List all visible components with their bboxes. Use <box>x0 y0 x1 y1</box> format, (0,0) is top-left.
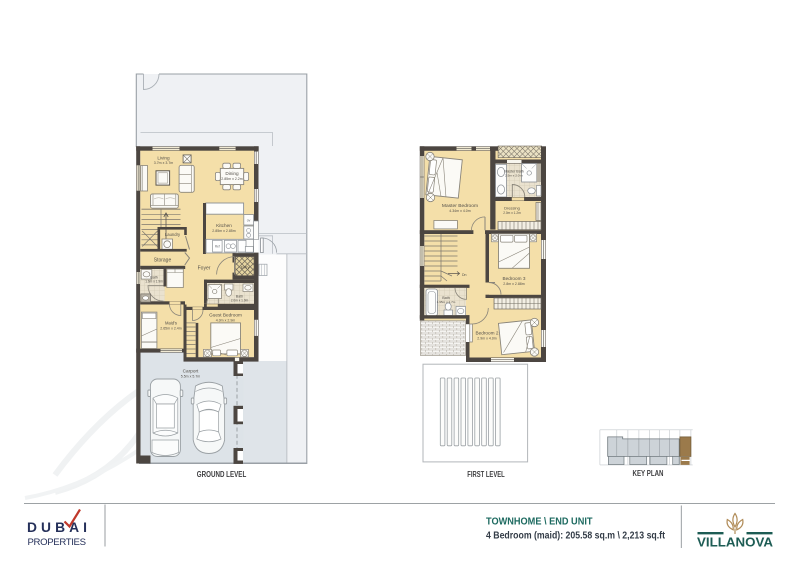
svg-text:1.95m x 1.7m: 1.95m x 1.7m <box>437 300 456 304</box>
svg-text:Dressing: Dressing <box>504 206 520 211</box>
svg-text:5.5m x 5.7m: 5.5m x 5.7m <box>181 374 201 378</box>
svg-text:2.85m x 2.85m: 2.85m x 2.85m <box>212 229 236 233</box>
svg-text:2.5m x 2.0 m: 2.5m x 2.0 m <box>505 174 523 178</box>
svg-text:Kitchen: Kitchen <box>216 223 232 228</box>
svg-text:GROUND LEVEL: GROUND LEVEL <box>197 470 247 479</box>
svg-text:Guest Bedroom: Guest Bedroom <box>209 313 242 318</box>
svg-text:2.9m x 4.0m: 2.9m x 4.0m <box>477 336 497 340</box>
svg-text:VILLANOVA: VILLANOVA <box>697 536 773 550</box>
svg-text:Maid's: Maid's <box>165 321 177 326</box>
svg-text:PROPERTIES: PROPERTIES <box>28 537 87 548</box>
svg-text:DUBAI: DUBAI <box>27 520 87 535</box>
svg-text:Ref: Ref <box>215 245 220 249</box>
svg-text:2.0m x 1.9m: 2.0m x 1.9m <box>231 299 249 303</box>
svg-text:Dining: Dining <box>225 171 239 176</box>
svg-text:2.65m x 2.4m: 2.65m x 2.4m <box>160 326 182 330</box>
svg-text:1.6m x 1.9m: 1.6m x 1.9m <box>145 280 163 284</box>
svg-text:4 Bedroom (maid): 205.58 sq.m: 4 Bedroom (maid): 205.58 sq.m \ 2,213 sq… <box>486 530 665 542</box>
svg-text:Carport: Carport <box>183 369 199 374</box>
svg-text:3.7m x 3.7m: 3.7m x 3.7m <box>154 161 174 165</box>
svg-text:Bedroom 2: Bedroom 2 <box>476 331 499 336</box>
svg-text:Laundry: Laundry <box>165 232 181 237</box>
svg-text:KEY PLAN: KEY PLAN <box>633 469 664 478</box>
svg-text:2.0m x 1.2m: 2.0m x 1.2m <box>503 211 521 215</box>
svg-text:Foyer: Foyer <box>198 266 211 272</box>
svg-text:Living: Living <box>157 156 170 161</box>
svg-text:FIRST LEVEL: FIRST LEVEL <box>467 470 505 479</box>
svg-text:4.34m x 4.0m: 4.34m x 4.0m <box>449 209 471 213</box>
svg-text:Entry: Entry <box>241 266 250 270</box>
svg-text:4.0m x 2.9m: 4.0m x 2.9m <box>216 318 236 322</box>
svg-text:Dn: Dn <box>462 273 467 277</box>
svg-text:2.8m x 2.88m: 2.8m x 2.88m <box>503 282 525 286</box>
svg-text:ov: ov <box>247 219 251 223</box>
svg-text:Storage: Storage <box>154 258 172 264</box>
svg-text:Bedroom 3: Bedroom 3 <box>503 276 526 281</box>
svg-text:TOWNHOME \ END UNIT: TOWNHOME \ END UNIT <box>486 516 593 528</box>
svg-text:2.85m x 2.2m: 2.85m x 2.2m <box>221 177 243 181</box>
